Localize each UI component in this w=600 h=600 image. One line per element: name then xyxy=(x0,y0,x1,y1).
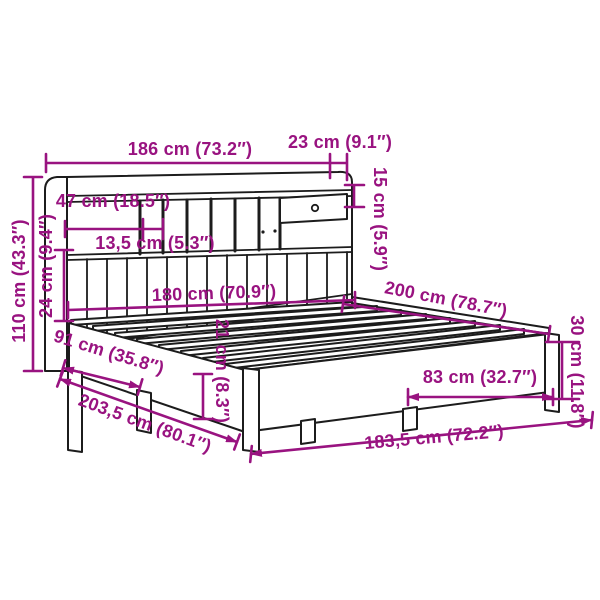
dim-label-inner-width: 180 cm (70.9″) xyxy=(151,282,276,304)
dim-label-top-shelf-height: 15 cm (5.9″) xyxy=(371,167,389,271)
dim-label-headboard-width: 186 cm (73.2″) xyxy=(128,140,253,158)
dim-label-compartment-width: 47 cm (18.5″) xyxy=(56,192,170,210)
dim-label-slot-width: 13,5 cm (5.3″) xyxy=(95,234,214,252)
dim-label-headboard-height: 110 cm (43.3″) xyxy=(10,219,28,343)
dim-label-shelf-depth: 23 cm (9.1″) xyxy=(288,133,392,151)
dim-label-frame-height: 30 cm (11.8″) xyxy=(568,315,586,428)
bed-line-drawing xyxy=(0,0,600,600)
dim-label-rail-height: 21 cm (8.3″) xyxy=(213,319,231,423)
dim-label-leg-spacing: 83 cm (32.7″) xyxy=(423,368,537,386)
diagram-canvas: 186 cm (73.2″) 23 cm (9.1″) 15 cm (5.9″)… xyxy=(0,0,600,600)
dim-label-plank-panel-height: 24 cm (9.4″) xyxy=(37,214,55,318)
